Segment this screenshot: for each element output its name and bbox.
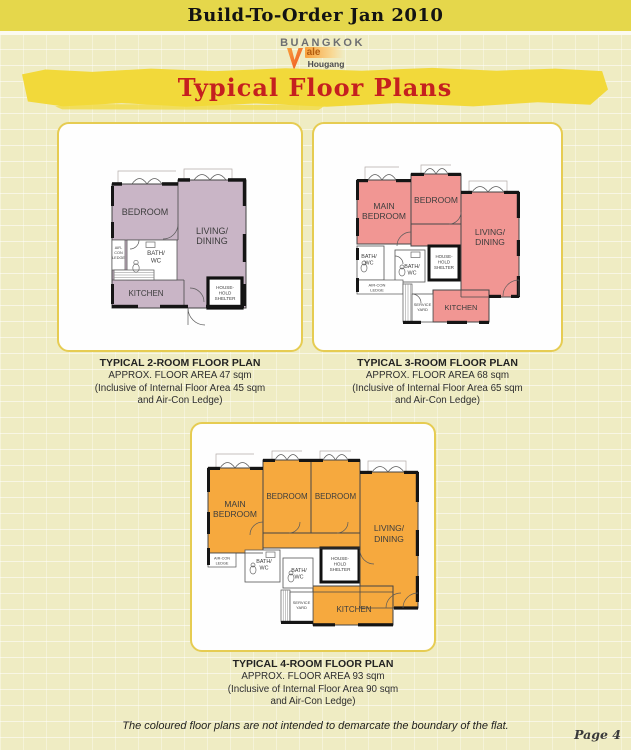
logo-hougang-text: Hougang: [305, 59, 345, 69]
room-label-living: LIVING/: [196, 226, 229, 236]
room-label-service: YARD: [296, 605, 307, 610]
room-label-bath-1: BATH/: [361, 254, 377, 260]
room-label-shelter: SHELTER: [330, 567, 352, 572]
room-label-shelter: HOUSE-: [216, 285, 234, 290]
room-label-bedroom-2: BEDROOM: [315, 492, 357, 501]
room-label-bath-1: BATH/: [256, 559, 272, 565]
caption-detail: (Inclusive of Internal Floor Area 65 sqm: [312, 383, 563, 396]
floor-plan-drawing-3room: MAIN BEDROOM BEDROOM LIVING/ DINING BATH…: [355, 160, 521, 326]
header-band: Build-To-Order Jan 2010: [0, 0, 631, 35]
caption-detail: (Inclusive of Internal Floor Area 90 sqm: [190, 684, 436, 697]
room-label-shelter: HOLD: [219, 291, 232, 296]
caption-detail: and Air-Con Ledge): [312, 395, 563, 408]
room-label-aircon: AIR-CON: [214, 557, 230, 561]
room-label-kitchen: KITCHEN: [128, 289, 163, 298]
room-label-wc: WC: [151, 258, 162, 265]
caption-detail: and Air-Con Ledge): [57, 395, 303, 408]
caption-title: TYPICAL 2-ROOM FLOOR PLAN: [57, 357, 303, 370]
room-label-aircon: AIR-: [115, 246, 123, 250]
room-label-kitchen: KITCHEN: [444, 303, 477, 312]
caption-area: APPROX. FLOOR AREA 93 sqm: [190, 671, 436, 684]
room-aircon-ledge: [112, 240, 125, 270]
room-label-wc-1: WC: [260, 566, 269, 572]
room-label-aircon: CON: [114, 251, 123, 255]
room-label-bath: BATH/: [147, 250, 165, 257]
caption-area: APPROX. FLOOR AREA 68 sqm: [312, 370, 563, 383]
page-number: Page 4: [574, 727, 621, 742]
disclaimer-note: The coloured floor plans are not intende…: [0, 720, 631, 732]
section-title: Typical Floor Plans: [178, 73, 453, 102]
caption-3room: TYPICAL 3-ROOM FLOOR PLAN APPROX. FLOOR …: [312, 357, 563, 408]
room-label-main-bedroom: BEDROOM: [362, 211, 406, 221]
room-label-shelter: HOUSE-: [331, 556, 349, 561]
room-label-main-bedroom: BEDROOM: [213, 509, 257, 519]
room-label-shelter: HOUSE-: [435, 254, 453, 259]
room-label-aircon: LEDGE: [112, 256, 125, 260]
room-label-service: YARD: [417, 307, 428, 312]
room-label-main-bedroom: MAIN: [224, 499, 245, 509]
caption-detail: and Air-Con Ledge): [190, 696, 436, 709]
corridor: [263, 533, 360, 548]
floor-plan-drawing-4room: MAIN BEDROOM BEDROOM BEDROOM LIVING/ DIN…: [206, 446, 420, 640]
caption-4room: TYPICAL 4-ROOM FLOOR PLAN APPROX. FLOOR …: [190, 658, 436, 709]
room-label-living: LIVING/: [474, 227, 505, 237]
floor-plan-card-4room: MAIN BEDROOM BEDROOM BEDROOM LIVING/ DIN…: [190, 422, 436, 652]
room-label-wc-1: WC: [364, 261, 373, 267]
caption-area: APPROX. FLOOR AREA 47 sqm: [57, 370, 303, 383]
room-label-wc-2: WC: [407, 271, 416, 277]
room-label-shelter: SHELTER: [434, 265, 454, 270]
room-label-aircon: LEDGE: [370, 288, 384, 293]
room-label-shelter: HOLD: [437, 260, 449, 265]
caption-detail: (Inclusive of Internal Floor Area 45 sqm: [57, 383, 303, 396]
caption-title: TYPICAL 4-ROOM FLOOR PLAN: [190, 658, 436, 671]
room-label-dining: DINING: [475, 237, 505, 247]
room-label-aircon: LEDGE: [216, 562, 229, 566]
caption-title: TYPICAL 3-ROOM FLOOR PLAN: [312, 357, 563, 370]
corridor: [411, 224, 461, 246]
logo-vale-text: ale: [305, 47, 345, 58]
room-label-living: LIVING/: [374, 523, 405, 533]
header-title: Build-To-Order Jan 2010: [188, 5, 444, 26]
v-logo-icon: [287, 47, 304, 71]
room-label-bedroom: BEDROOM: [122, 207, 169, 217]
room-label-main-bedroom: MAIN: [373, 201, 394, 211]
caption-2room: TYPICAL 2-ROOM FLOOR PLAN APPROX. FLOOR …: [57, 357, 303, 408]
room-label-bath-2: BATH/: [291, 568, 307, 574]
room-label-shelter: HOLD: [334, 562, 347, 567]
room-label-bedroom: BEDROOM: [414, 195, 458, 205]
room-label-dining: DINING: [196, 236, 228, 246]
brush-stroke-tail: [54, 104, 326, 110]
floor-plan-card-2room: BEDROOM LIVING/ DINING AIR- CON LEDGE BA…: [57, 122, 303, 352]
brochure-page: { "page": { "header_title": "Build-To-Or…: [0, 0, 631, 750]
room-label-bedroom-1: BEDROOM: [266, 492, 308, 501]
section-title-banner: Typical Floor Plans: [22, 67, 608, 108]
room-label-wc-2: WC: [295, 575, 304, 581]
floor-plan-drawing-2room: BEDROOM LIVING/ DINING AIR- CON LEDGE BA…: [110, 164, 250, 330]
room-label-dining: DINING: [374, 534, 404, 544]
room-label-shelter: SHELTER: [215, 296, 237, 301]
floor-plan-card-3room: MAIN BEDROOM BEDROOM LIVING/ DINING BATH…: [312, 122, 563, 352]
buangkok-vale-logo: BUANGKOK ale Hougang: [0, 37, 631, 71]
room-label-bath-2: BATH/: [404, 264, 420, 270]
room-label-kitchen: KITCHEN: [336, 605, 371, 614]
